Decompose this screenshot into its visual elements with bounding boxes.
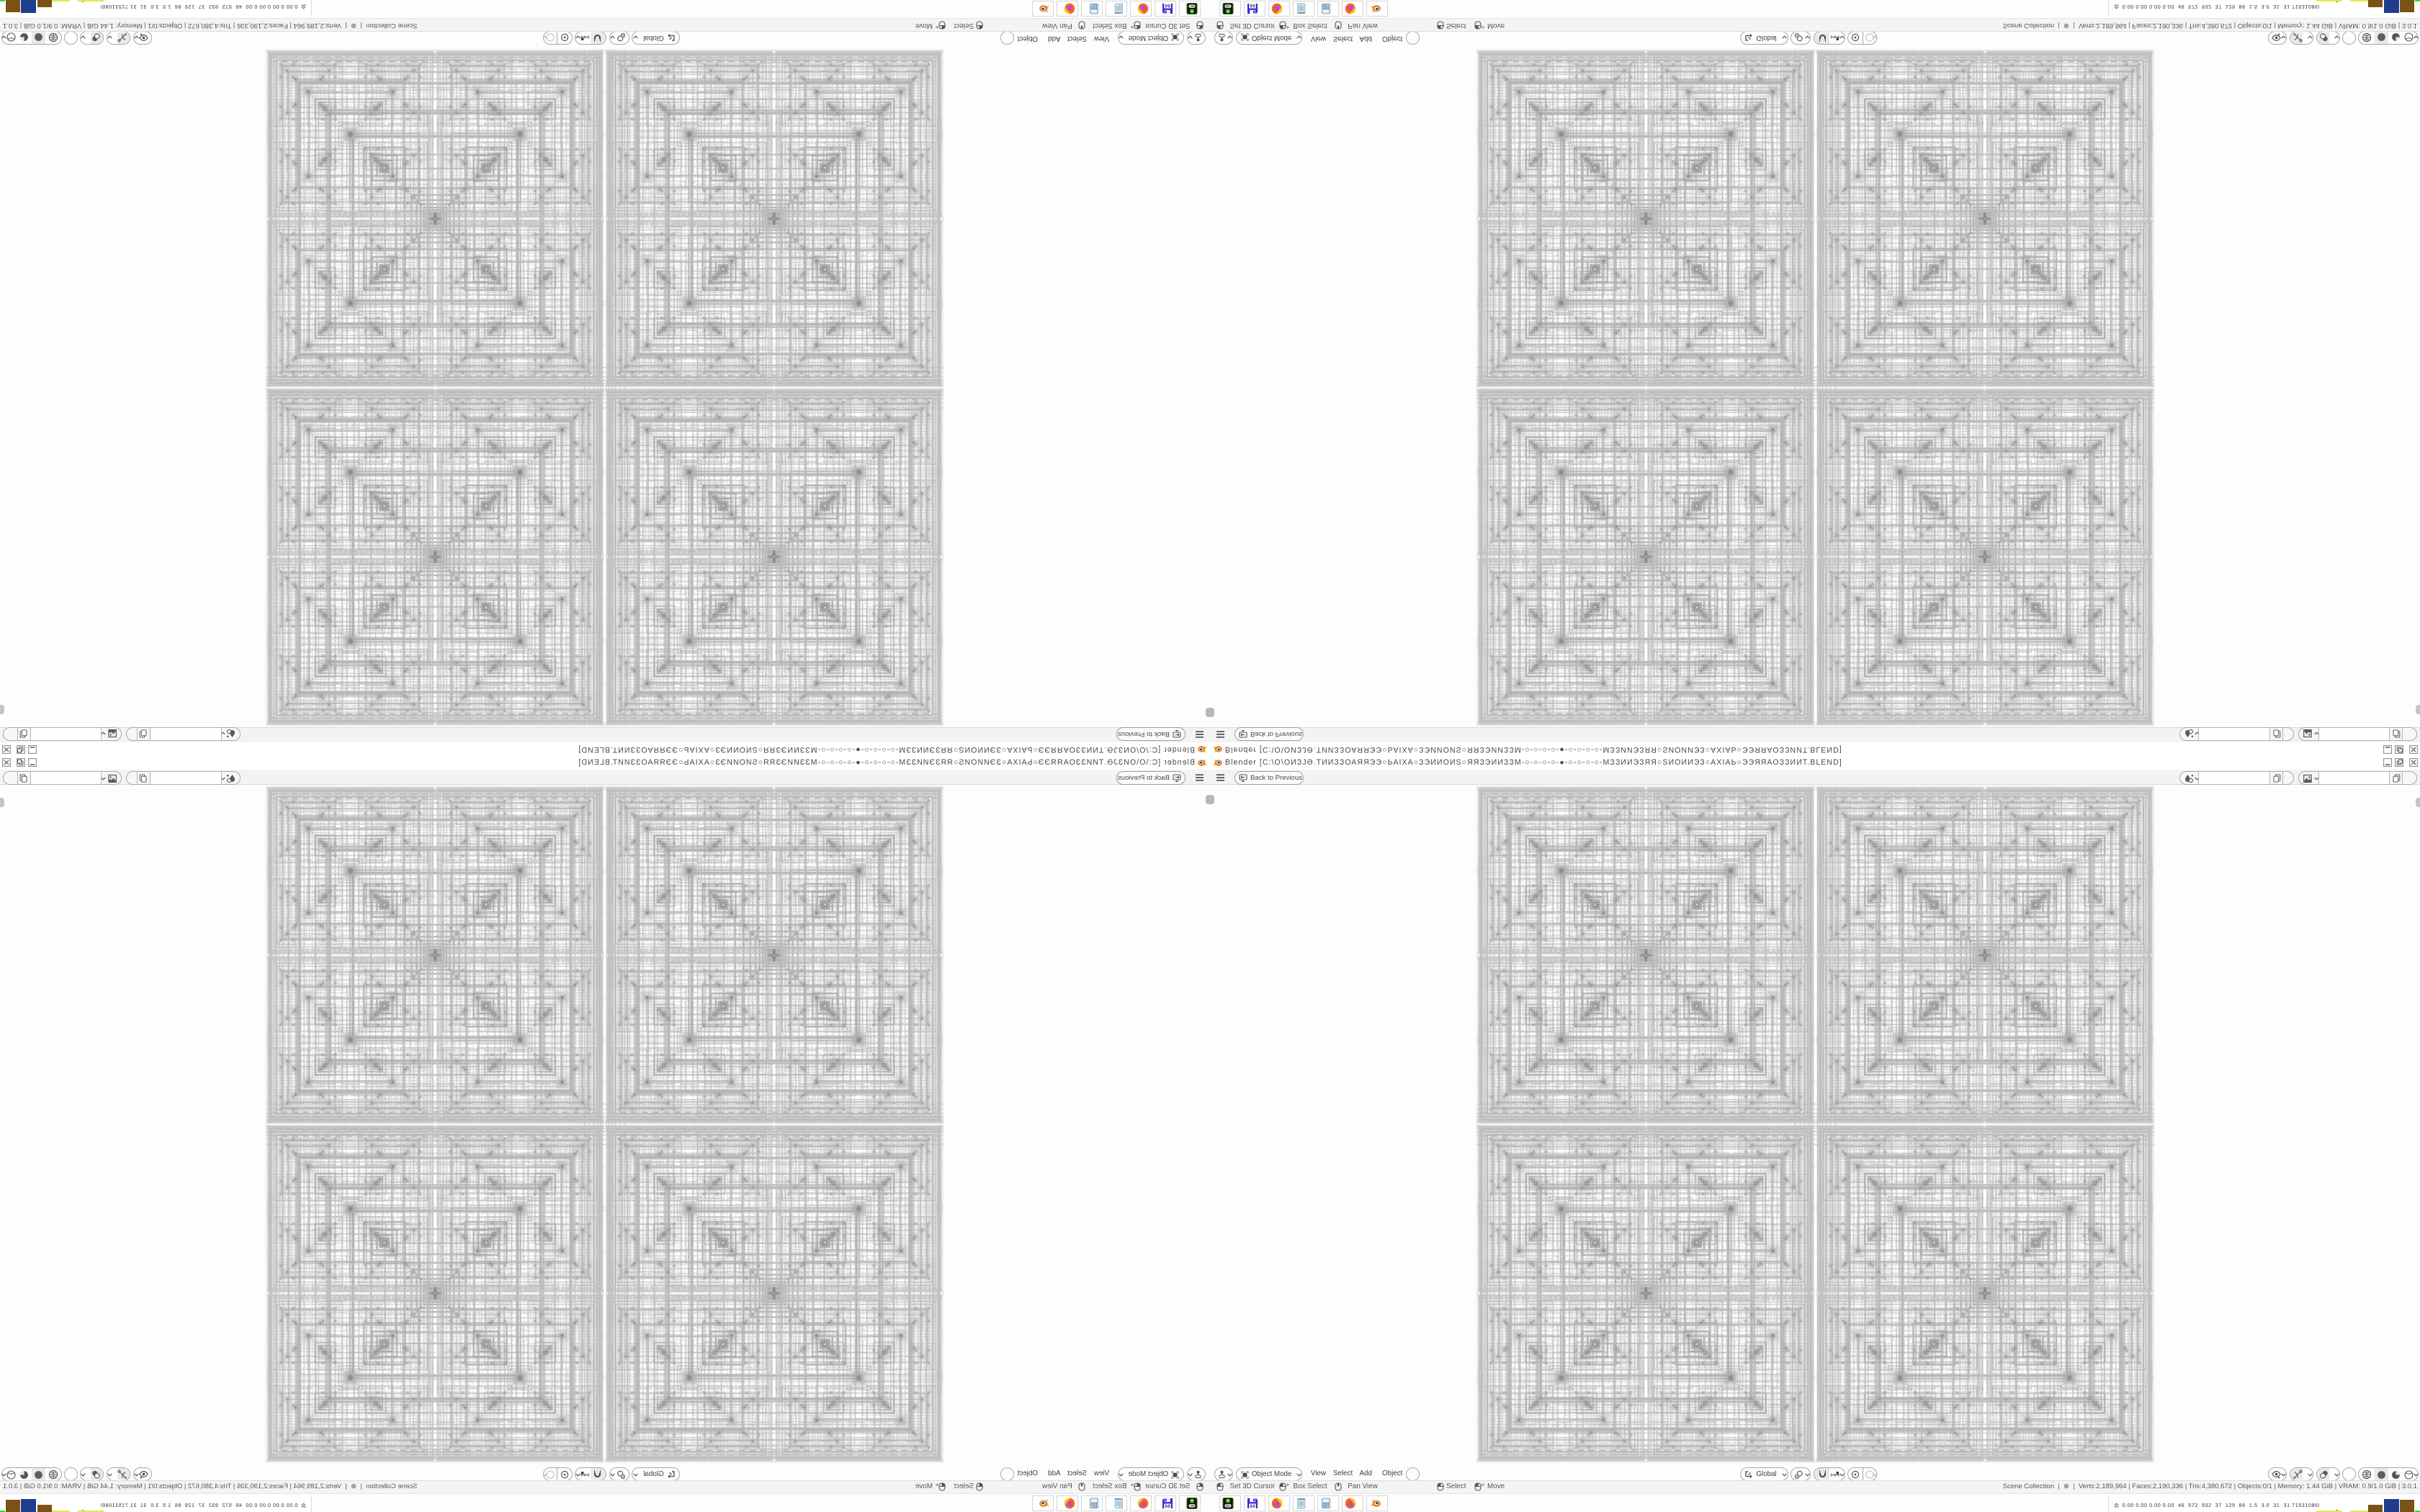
svg-text:64: 64 — [1165, 3, 1170, 8]
svg-text:64: 64 — [1250, 3, 1255, 8]
svg-text:64: 64 — [1250, 1504, 1255, 1509]
svg-text:64: 64 — [1165, 1504, 1170, 1509]
